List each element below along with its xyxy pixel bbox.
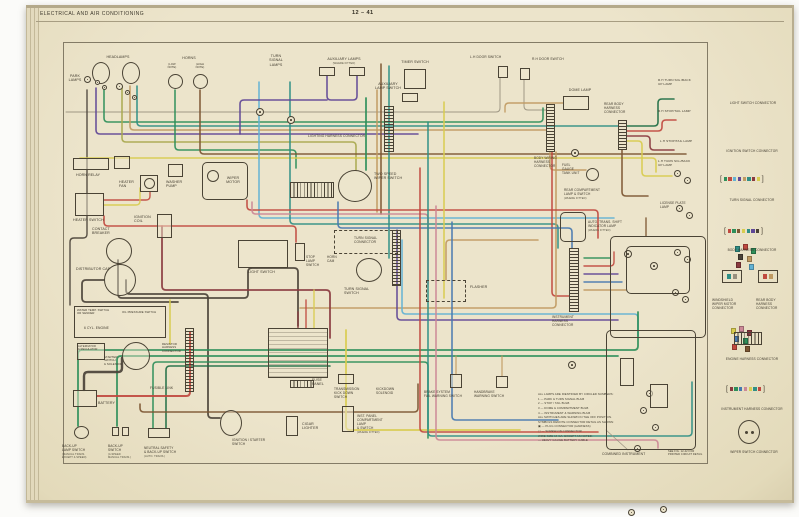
instrument-harness-connector-mid [569, 248, 579, 312]
dome-lamp-label: DOME LAMP [564, 88, 596, 92]
contact-breaker-label: CONTACT BREAKER [92, 227, 120, 236]
horns-label: HORNS [172, 56, 206, 60]
combined-instrument-lamp-2 [628, 509, 635, 516]
stop-lamp-switch [295, 243, 305, 261]
lh-door-switch [498, 66, 508, 78]
timer-switch-label: TIMER SWITCH [396, 60, 434, 64]
indicator-cluster-inner [626, 246, 690, 294]
headlamp-right-bulb-1 [125, 90, 130, 95]
horn-relay-label: HORN RELAY [76, 173, 112, 177]
rh-turn-backup-bulb-1 [674, 170, 681, 177]
flasher-label: FLASHER [470, 285, 498, 289]
water-temp-label: WATER TEMP. SWITCH OR SENDER [77, 309, 127, 316]
resistor-harness-connector [185, 328, 194, 392]
body-harness-connector-right-icon [724, 226, 780, 236]
stop-lamp-switch-label: STOP LAMP SWITCH [306, 255, 328, 267]
turn-signal-connector-label: TURN SIGNAL CONNECTOR [354, 236, 394, 244]
ignition-starter-switch-label: IGNITION / STARTER SWITCH [232, 438, 284, 446]
neutral-safety-backup-switch [148, 428, 170, 438]
horn-right [193, 74, 208, 89]
rh-stop-tail-lamp-label: R.H STOP/TAIL LAMP [658, 110, 706, 114]
dome-lamp [563, 96, 589, 110]
fuse-panel-connector [290, 380, 314, 388]
rh-stop-tail-bulb-2 [686, 212, 693, 219]
backup-lamp-switch-label: BACK-UP LAMP SWITCH(MANUAL TRANS. EXCEPT… [62, 444, 98, 459]
cigar-lighter [286, 416, 298, 436]
resistor-harness-connector-label: RESISTOR HARNESS CONNECTOR [162, 343, 192, 353]
horn-relay [73, 158, 109, 170]
light-switch-connector-label: LIGHT SWITCH CONNECTOR [712, 101, 794, 105]
brake-fail-warning-switch-label: BRAKE SYSTEM FAIL WARNING SWITCH [424, 390, 478, 398]
ignition-starter-switch [220, 410, 242, 436]
horn-cam-label: HORN CAM [327, 255, 343, 263]
rh-turn-backup-bulb-2 [684, 177, 691, 184]
turn-signal-connector-right-label: TURN SIGNAL CONNECTOR [712, 198, 792, 202]
wiper-switch-connector-icon [738, 420, 760, 444]
rear-compartment-lamp-label: REAR COMPARTMENT LAMP & SWITCH(WHERE FIT… [564, 188, 620, 200]
wiper-motor-label: WIPER MOTOR [222, 176, 244, 185]
auxiliary-lamp-switch-label: AUXILIARY LAMP SWITCH [370, 82, 406, 91]
turn-signal-lamp-right [287, 116, 295, 124]
handbrake-warning-switch-label: HANDBRAKE WARNING SWITCH [474, 390, 520, 398]
combined-instrument-gauge-2 [650, 384, 668, 408]
instrument-harness-connector-right-label: INSTRUMENT HARNESS CONNECTOR [708, 407, 796, 411]
rear-body-harness-connector-right-icon [758, 270, 778, 283]
horn-high-note-label: (HIGH NOTE) [191, 63, 209, 70]
rh-stop-tail-bulb-1 [676, 205, 683, 212]
horn-relay-diode [114, 156, 130, 169]
two-speed-wiper-switch-label: TWO SPEED WIPER SWITCH [374, 172, 416, 181]
combined-instrument-lamp-1 [660, 506, 667, 513]
auxiliary-lamps-label: AUXILIARY LAMPS(WHERE FITTED) [316, 57, 372, 65]
shift-indicator-bulb [568, 361, 576, 369]
turn-signal-lamp-left [256, 108, 264, 116]
horn-low-note-label: (LOW NOTE) [163, 63, 181, 70]
fuel-gauge-tank-unit [586, 168, 599, 181]
inst-panel-compartment-lamp-label: INST. PANEL COMPARTMENT LAMP & SWITCH(WH… [357, 414, 397, 434]
diagram-components: PARK LAMPSHEADLAMPSHORNS(LOW NOTE)(HIGH … [0, 0, 799, 517]
rear-body-harness-connector [618, 120, 627, 150]
two-speed-wiper-switch [338, 170, 372, 202]
inst-panel-compartment-lamp [342, 406, 354, 432]
instrument-harness-connector-right-icon [726, 384, 784, 394]
ignition-coil [157, 214, 172, 238]
auxiliary-lamp-right [349, 67, 365, 76]
cigar-lighter-label: CIGAR LIGHTER [302, 422, 328, 431]
windshield-wiper-motor-connector-icon [722, 270, 742, 283]
kickdown-solenoid-label: KICKDOWN SOLENOID [376, 387, 408, 395]
transmission-kickdown-switch-label: TRANSMISSION KICK DOWN SWITCH [334, 387, 376, 399]
transmission-kickdown-switch [338, 374, 354, 384]
heater-switch [75, 193, 104, 216]
headlamp-right-bulb-2 [132, 95, 137, 100]
alternator-regulator-label: ALTERNATOR & REGULATOR [78, 345, 104, 351]
starter-switch-solenoid-label: STARTER SWITCH & SOLENOID [104, 356, 128, 366]
lh-door-switch-label: L.H DOOR SWITCH [470, 55, 518, 59]
heater-fan-motor [144, 178, 155, 189]
rh-turn-backup-lamp-label: R.H TURN SIG./BACK UP LAMP [658, 79, 704, 87]
backup-switch-terminal-1 [112, 427, 119, 436]
headlamp-right [122, 62, 140, 84]
rh-door-switch [520, 68, 530, 80]
windshield-wiper-motor-connector-label: WINDSHIELD WIPER MOTOR CONNECTOR [712, 298, 754, 310]
combined-instrument-gauge-1 [620, 358, 634, 386]
backup-lamp-switch [74, 426, 89, 439]
ignition-switch-connector-label: IGNITION SWITCH CONNECTOR [710, 149, 794, 153]
ignition-coil-label: IGNITION COIL [134, 215, 158, 224]
instrument-harness-connector-mid-label: INSTRUMENT HARNESS CONNECTOR [552, 315, 592, 327]
auxiliary-lamp-left [319, 67, 335, 76]
handbrake-warning-switch [496, 376, 508, 388]
battery-label: BATTERY [98, 401, 126, 405]
engine-harness-connector-icon [734, 332, 762, 345]
headlamp-left-bulb-1 [95, 80, 100, 85]
turn-signal-switch [356, 258, 382, 282]
lh-stop-tail-lamp-label: L.H STOP/TAIL LAMP [660, 140, 708, 144]
backup-switch-terminal-2 [122, 427, 129, 436]
backup-switch-label: BACK-UP SWITCH(4-SPEED MANUAL TRANS.) [108, 444, 136, 459]
washer-pump [168, 164, 183, 177]
rear-body-harness-connector-label: REAR BODY HARNESS CONNECTOR [604, 102, 640, 114]
flasher [426, 280, 466, 302]
engine-harness-connector-label: ENGINE HARNESS CONNECTOR [708, 357, 796, 361]
headlamp-left-bulb-2 [102, 85, 107, 90]
body-harness-connector-right-label: BODY HARNESS CONNECTOR [710, 248, 794, 252]
rh-door-switch-label: R.H DOOR SWITCH [532, 57, 580, 61]
fuse-panel-label: FUSE PANEL [312, 378, 332, 387]
brake-fail-warning-switch [450, 374, 462, 388]
body-wiring-harness-connector [546, 104, 555, 152]
timer-switch [404, 69, 426, 89]
headlamps-label: HEADLAMPS [96, 55, 140, 59]
park-lamp-left [84, 76, 91, 83]
oil-pressure-label: OIL PRESSURE SWITCH [122, 311, 166, 314]
rear-body-harness-connector-right-label: REAR BODY HARNESS CONNECTOR [756, 298, 794, 310]
lighting-harness-connector-label: LIGHTING HARNESS CONNECTOR [308, 134, 388, 138]
engine-label: 6 CYL. ENGINE [84, 326, 126, 330]
contact-breaker [106, 238, 132, 264]
lh-turn-backup-lamp-label: L.H TURN SIG./BACK UP LAMP [658, 160, 704, 168]
turn-signal-connector-strip [392, 230, 401, 286]
light-switch-label: LIGHT SWITCH [248, 270, 290, 274]
washer-pump-label: WASHER PUMP [166, 180, 188, 189]
fuse-panel [268, 328, 328, 378]
diagram-notes: ALL LAMPS ARE IDENTIFIED BY CIRCLED NUMB… [538, 392, 642, 454]
park-lamp-right [116, 83, 123, 90]
heater-switch-label: HEATER SWITCH [73, 218, 117, 222]
light-switch [238, 240, 288, 268]
wiper-motor-armature [207, 170, 219, 182]
turn-signal-switch-label: TURN SIGNAL SWITCH [344, 287, 384, 296]
fusible-link-label: FUSIBLE LINK [150, 386, 188, 390]
lighting-harness-connector [384, 106, 394, 152]
shift-indicator-label: AUTO. TRANS. SHIFT INDICATOR LAMP(WHERE … [588, 220, 642, 232]
auxiliary-lamp-switch [402, 93, 418, 102]
wiper-motor-connector [290, 182, 334, 198]
wiper-switch-connector-label: WIPER SWITCH CONNECTOR [714, 450, 794, 454]
turn-signal-lamps-label: TURN SIGNAL LAMPS [263, 54, 289, 67]
battery-box [73, 390, 97, 407]
heater-fan-label: HEATER FAN [119, 180, 141, 189]
neutral-safety-backup-switch-label: NEUTRAL SAFETY & BACK-UP SWITCH(AUTO. TR… [144, 446, 192, 458]
combined-instrument-note: SEE FIG. 12-42 FOR PRINTED CIRCUIT DETAI… [668, 450, 708, 456]
turn-signal-connector-right-icon [720, 174, 780, 184]
shift-indicator-box [560, 212, 586, 242]
horn-left [168, 74, 183, 89]
distributor-cap [104, 264, 136, 296]
